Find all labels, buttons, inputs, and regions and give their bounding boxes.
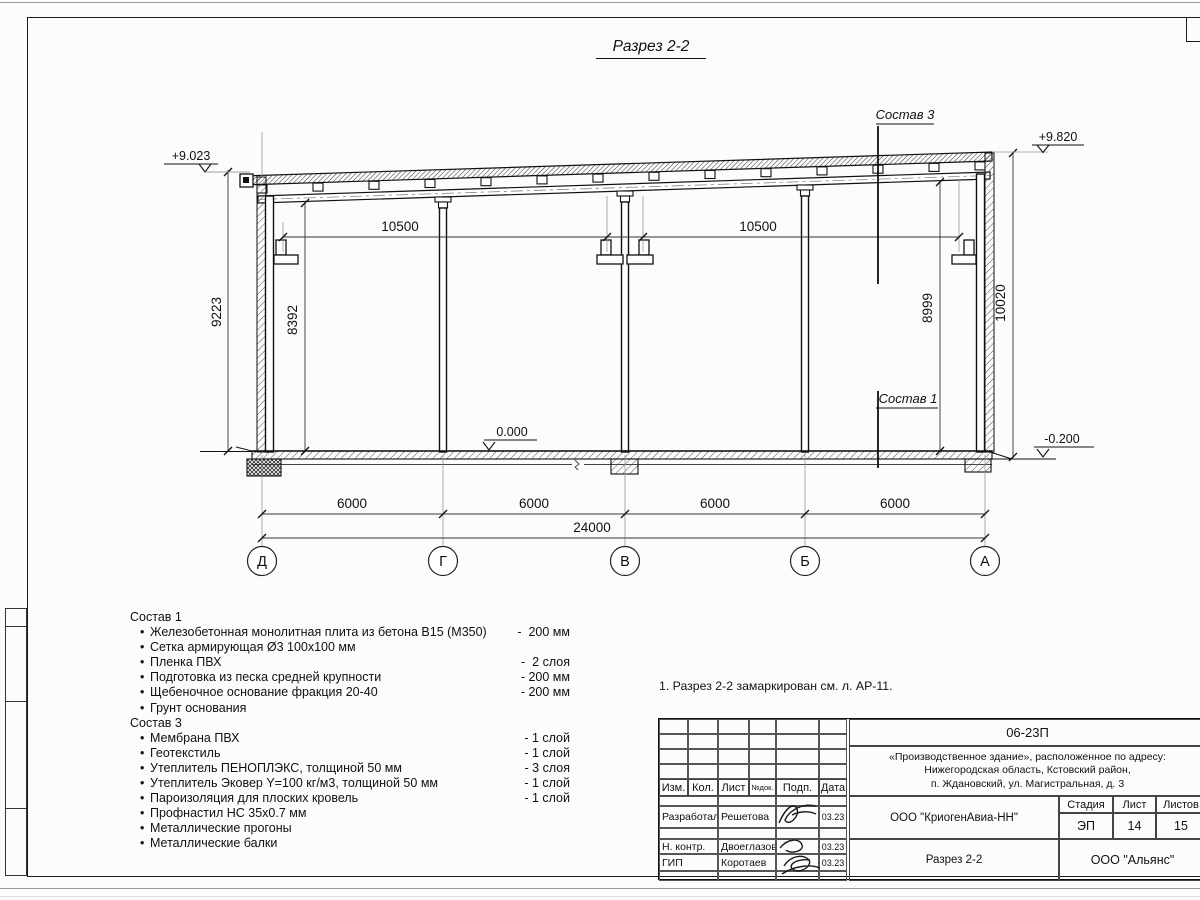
item-name: Утеплитель ПЕНОПЛЭКС, толщиной 50 мм [150,761,525,776]
dim-9223: 9223 [209,297,224,327]
doc-number: 06-23П [849,719,1200,746]
bullet: • [128,806,150,821]
list-item: •Грунт основания [128,701,570,716]
bullet: • [128,701,150,716]
row-name: Коротаев [718,854,776,871]
bullet: • [128,685,150,700]
item-name: Пленка ПВХ [150,655,521,670]
list-item: •Железобетонная монолитная плита из бето… [128,625,570,640]
item-value: - 200 мм [521,685,570,700]
row-name: Двоеглазов [718,839,776,854]
sheet-edge-bottom [0,888,1200,889]
row-name: Решетова [718,806,776,828]
bullet: • [128,655,150,670]
dimension-bays: 6000 6000 6000 6000 24000 [258,496,989,542]
bullet: • [128,731,150,746]
bullet: • [128,791,150,806]
item-name: Подготовка из песка средней крупности [150,670,521,685]
row-role: ГИП [659,854,718,871]
list-item: •Мембрана ПВХ- 1 слой [128,731,570,746]
axis-label-d: Д [257,554,267,570]
object-line-2: Нижегородская область, Кстовский район, [924,764,1131,777]
col-ndok: №док. [749,779,776,796]
item-value: - 2 слоя [521,655,570,670]
revision-header: Изм. Кол. Лист №док. Подп. Дата [659,779,847,796]
sheets-header: Листов [1156,796,1200,813]
item-name: Железобетонная монолитная плита из бетон… [150,625,517,640]
dim-8392: 8392 [285,305,300,335]
signature-1 [776,797,820,831]
object-line-3: п. Ждановский, ул. Магистральная, д. 3 [931,778,1124,791]
list-item: •Утеплитель ПЕНОПЛЭКС, толщиной 50 мм- 3… [128,761,570,776]
item-value: - 200 мм [521,670,570,685]
item-value: - 1 слой [524,746,570,761]
bullet: • [128,761,150,776]
dim-span-left: 10500 [381,219,419,234]
col-data: Дата [819,779,847,796]
sostav1-heading: Состав 1 [128,610,570,625]
dim-bay-4: 6000 [880,496,910,511]
object-line-1: «Производственное здание», расположенное… [889,751,1166,764]
sostav3-heading: Состав 3 [128,716,570,731]
sheet-header: Лист [1113,796,1156,813]
revision-grid [659,719,847,779]
axis-label-v: В [620,554,630,570]
bullet: • [128,836,150,851]
sheet-number: 14 [1113,813,1156,839]
right-wall [977,153,995,452]
row-role: Н. контр. [659,839,718,854]
bullet: • [128,625,150,640]
elevation-top-left: +9.023 [172,149,211,163]
leader-sostav1: Состав 1 [879,391,938,406]
org-name: ООО "КриогенАвиа-НН" [849,796,1059,839]
item-name: Щебеночное основание фракция 20-40 [150,685,521,700]
composition-lists: Состав 1 •Железобетонная монолитная плит… [128,610,570,852]
list-item: •Подготовка из песка средней крупности- … [128,670,570,685]
bullet: • [128,670,150,685]
signature-2 [776,836,824,878]
sheet-shadow-bottom [0,896,1200,897]
col-izm: Изм. [659,779,688,796]
title-block: Изм. Кол. Лист №док. Подп. Дата Разработ… [658,718,1200,880]
item-value: - 1 слой [524,791,570,806]
item-name: Профнастил НС 35х0.7 мм [150,806,570,821]
elevation-top-right: +9.820 [1039,130,1078,144]
row-role: Разработал [659,806,718,828]
dim-8999: 8999 [920,293,935,323]
col-list: Лист [718,779,749,796]
list-item: •Профнастил НС 35х0.7 мм [128,806,570,821]
list-item: •Геотекстиль- 1 слой [128,746,570,761]
item-value: - 200 мм [517,625,570,640]
drawing-sheet: { "sheet": { "title": "Разрез 2-2", "not… [0,0,1200,900]
left-margin-stamp-boxes [5,608,27,876]
item-value: - 1 слой [524,731,570,746]
dim-10020: 10020 [993,284,1008,322]
item-name: Металлические прогоны [150,821,570,836]
row-date: 03.23 [819,806,847,828]
list-item: •Пароизоляция для плоских кровель- 1 сло… [128,791,570,806]
dim-bay-2: 6000 [519,496,549,511]
dim-bay-3: 6000 [700,496,730,511]
list-item: •Металлические прогоны [128,821,570,836]
item-value: - 1 слой [524,776,570,791]
list-item: •Утеплитель Эковер Y=100 кг/м3, толщиной… [128,776,570,791]
dim-bay-1: 6000 [337,496,367,511]
col-kol: Кол. [688,779,718,796]
axis-label-b: Б [800,554,810,570]
dim-total: 24000 [573,520,611,535]
stage-header: Стадия [1059,796,1113,813]
stage-value: ЭП [1059,813,1113,839]
item-name: Утеплитель Эковер Y=100 кг/м3, толщиной … [150,776,524,791]
object-address: «Производственное здание», расположенное… [849,746,1200,796]
sheets-total: 15 [1156,813,1200,839]
item-name: Грунт основания [150,701,570,716]
left-wall [257,177,274,452]
foundation-blocks [247,459,991,476]
bullet: • [128,746,150,761]
list-item: •Щебеночное основание фракция 20-40- 200… [128,685,570,700]
bullet: • [128,640,150,655]
item-value: - 3 слоя [525,761,570,776]
elevation-floor: 0.000 [496,425,527,439]
section-drawing: 10500 10500 9223 8392 8999 10020 +9.023 … [0,0,1200,600]
list-item: •Сетка армирующая Ø3 100х100 мм [128,640,570,655]
company-name: ООО "Альянс" [1059,839,1200,881]
drawing-name: Разрез 2-2 [849,839,1059,881]
axis-label-g: Г [439,554,447,570]
list-item: •Пленка ПВХ- 2 слоя [128,655,570,670]
item-name: Пароизоляция для плоских кровель [150,791,524,806]
axis-bubbles: Д Г В Б А [248,547,1000,576]
leader-sostav3: Состав 3 [876,107,935,122]
list-item: •Металлические балки [128,836,570,851]
drawing-note: 1. Разрез 2-2 замаркирован см. л. АР-11. [659,679,893,693]
elevation-ground-right: -0.200 [1044,432,1079,446]
bullet: • [128,776,150,791]
bullet: • [128,821,150,836]
col-podp: Подп. [776,779,819,796]
dim-span-right: 10500 [739,219,777,234]
item-name: Металлические балки [150,836,570,851]
item-name: Геотекстиль [150,746,524,761]
item-name: Мембрана ПВХ [150,731,524,746]
item-name: Сетка армирующая Ø3 100х100 мм [150,640,570,655]
axis-label-a: А [980,554,990,570]
